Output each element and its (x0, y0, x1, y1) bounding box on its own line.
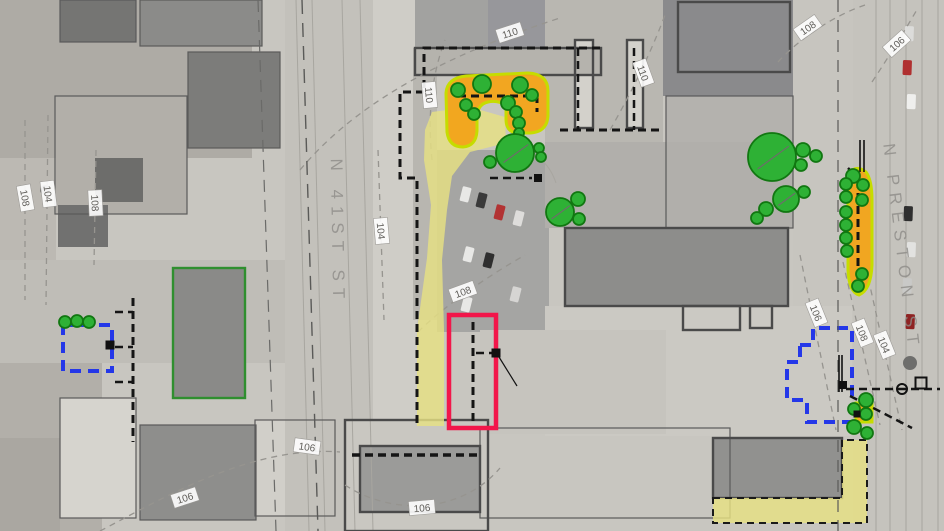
tree-icon (748, 133, 796, 181)
aerial-patch (713, 438, 842, 498)
tree-icon (71, 315, 83, 327)
tree-icon (796, 143, 810, 157)
tree-icon (536, 152, 546, 162)
tree-icon (546, 198, 574, 226)
tree-icon (795, 159, 807, 171)
tree-icon (751, 212, 763, 224)
contour-label: 106 (408, 499, 435, 515)
tree-icon (840, 219, 852, 231)
aerial-patch (565, 228, 788, 306)
tree-icon (573, 213, 585, 225)
aerial-patch (173, 268, 245, 398)
aerial-patch (663, 0, 793, 96)
tree-icon (840, 206, 852, 218)
tree-icon (512, 77, 528, 93)
parked-car (902, 60, 912, 75)
tree-icon (852, 280, 864, 292)
contour-elevation-text: 104 (374, 222, 386, 240)
tree-icon (840, 178, 852, 190)
aerial-patch (140, 0, 262, 46)
tree-icon (773, 186, 799, 212)
tree-icon (571, 192, 585, 206)
contour-label: 104 (40, 180, 57, 208)
tree-icon (810, 150, 822, 162)
contour-elevation-text: 106 (413, 503, 431, 515)
parked-car (906, 94, 916, 109)
tree-icon (841, 245, 853, 257)
tree-icon (861, 427, 873, 439)
survey-marker-square (854, 411, 861, 418)
survey-marker-square (839, 381, 847, 389)
tree-icon (847, 420, 861, 434)
contour-elevation-text: 108 (88, 194, 100, 212)
tree-icon (83, 316, 95, 328)
survey-marker-square (492, 349, 501, 358)
aerial-patch (60, 398, 136, 518)
tree-icon (496, 134, 534, 172)
tree-icon (856, 268, 868, 280)
street-name-label: N 41ST ST (327, 158, 349, 305)
aerial-patch (140, 425, 256, 520)
aerial-patch (60, 0, 136, 42)
tree-icon (856, 194, 868, 206)
contour-elevation-text: 104 (41, 185, 54, 203)
aerial-patch (480, 330, 666, 434)
tree-icon (859, 393, 873, 407)
tree-icon (526, 89, 538, 101)
tree-icon (860, 408, 872, 420)
site-plan-canvas: 1101101101081041081041081061061061081061… (0, 0, 944, 531)
tree-icon (840, 232, 852, 244)
contour-label: 104 (373, 217, 389, 244)
tree-icon (468, 108, 480, 120)
contour-label: 108 (88, 190, 103, 217)
tree-icon (840, 191, 852, 203)
tree-icon (857, 179, 869, 191)
tree-icon (484, 156, 496, 168)
survey-marker-square (106, 341, 115, 350)
aerial-patch (188, 52, 280, 148)
tree-icon (473, 75, 491, 93)
tree-icon (798, 186, 810, 198)
tree-icon (451, 83, 465, 97)
contour-elevation-text: 110 (422, 87, 434, 104)
aerial-site-plan: 1101101101081041081041081061061061081061… (0, 0, 944, 531)
tree-icon (510, 106, 522, 118)
survey-marker-square (534, 174, 542, 182)
aerial-patch (0, 438, 60, 531)
manhole-marker (903, 356, 917, 370)
tree-icon (59, 316, 71, 328)
contour-label: 110 (421, 81, 437, 108)
